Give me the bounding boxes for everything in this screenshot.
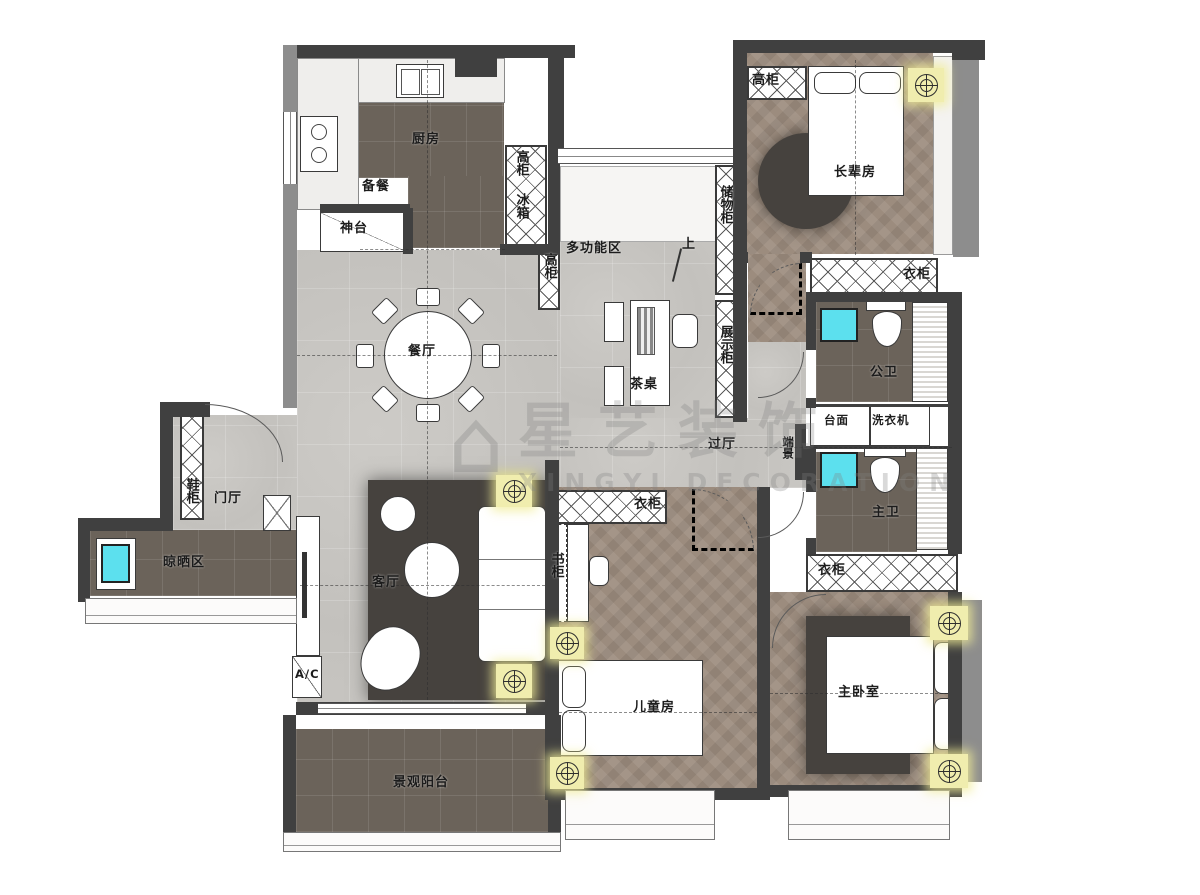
pillow	[814, 72, 856, 94]
public-bath-sink	[820, 308, 858, 342]
ceiling-light-icon	[930, 754, 968, 788]
label-display-cabinet: 展示柜	[718, 325, 732, 364]
ceiling-light-icon	[550, 757, 584, 789]
dining-chair	[356, 344, 374, 368]
label-master-bath: 主卫	[872, 506, 900, 520]
master-bath-shower	[916, 448, 948, 550]
label-bookcase: 书柜	[549, 552, 563, 578]
sink-basin	[421, 69, 440, 95]
side-round-table	[380, 496, 416, 532]
label-washing-machine: 洗衣机	[872, 414, 910, 426]
label-tall-cabinet: 高柜	[752, 74, 780, 88]
label-fridge: 冰箱	[514, 193, 528, 219]
desk-monitor	[637, 307, 655, 355]
wall-segment	[806, 446, 816, 492]
multi-function-platform	[560, 166, 716, 242]
wall-segment	[320, 204, 410, 213]
wall-segment	[548, 58, 564, 150]
desk-chair	[672, 314, 698, 348]
wall-segment	[548, 150, 560, 250]
label-kitchen: 厨房	[412, 133, 440, 147]
window	[558, 148, 738, 164]
ceiling-light-icon	[496, 664, 532, 698]
label-multi-function: 多功能区	[566, 242, 622, 256]
label-hallway: 过厅	[708, 438, 736, 452]
pillow	[859, 72, 901, 94]
guide-line	[427, 60, 428, 700]
wall-segment	[160, 402, 173, 530]
sofa	[478, 506, 546, 662]
wall-segment	[806, 302, 816, 350]
dining-chair	[416, 288, 440, 306]
entry-door-arc	[205, 404, 283, 462]
wall-segment	[733, 53, 747, 303]
floor-kitchen-b	[408, 176, 504, 248]
window-sill-balcony	[283, 832, 561, 852]
wall-segment	[800, 252, 812, 263]
label-ac: A/C	[295, 668, 320, 680]
wall-segment	[953, 60, 979, 257]
side-table	[604, 302, 624, 342]
label-wardrobe: 衣柜	[903, 268, 931, 282]
tv-console	[296, 516, 320, 656]
label-end-view: 端景	[782, 436, 794, 459]
wall-segment	[948, 292, 962, 554]
floor-hallway	[560, 418, 806, 488]
floor-plan-canvas: 厨房 高柜 备餐 冰箱 神台 高柜 多功能区 储物柜 上 高柜 长辈房 衣柜 公…	[0, 0, 1200, 895]
label-wardrobe: 衣柜	[634, 498, 662, 512]
sink-basin	[401, 69, 420, 95]
kitchen-stove	[300, 116, 338, 172]
master-bath-sink	[820, 452, 858, 488]
bay-window-children	[565, 790, 715, 840]
label-living: 客厅	[372, 576, 400, 590]
label-dining: 餐厅	[408, 345, 436, 359]
end-view-wall	[795, 424, 806, 480]
label-storage-cabinet: 储物柜	[718, 185, 732, 224]
label-public-bath: 公卫	[870, 366, 898, 380]
dining-chair	[416, 404, 440, 422]
master-bath-door-arc	[758, 492, 804, 538]
children-desk-chair	[589, 556, 609, 586]
guide-line	[560, 447, 952, 448]
ceiling-light-icon	[550, 627, 584, 659]
wall-segment	[733, 303, 747, 422]
kitchen-sink	[396, 64, 444, 98]
wall-segment	[283, 715, 296, 835]
label-shoe-cabinet: 鞋柜	[184, 478, 198, 504]
label-tall-cabinet: 高柜	[542, 253, 556, 279]
drying-washer	[96, 538, 136, 590]
guide-line	[360, 249, 505, 250]
side-table	[604, 366, 624, 406]
label-tea-table: 茶桌	[630, 378, 658, 392]
wall-segment	[733, 252, 748, 263]
foyer-cabinet	[263, 495, 291, 531]
guide-line	[855, 60, 856, 255]
label-prep: 备餐	[362, 180, 390, 194]
children-desk	[567, 524, 589, 622]
label-balcony: 景观阳台	[393, 776, 449, 790]
wall-segment	[806, 538, 816, 554]
wall-segment	[733, 40, 985, 53]
ceiling-light-icon	[930, 606, 968, 640]
dining-chair	[482, 344, 500, 368]
stove-burner	[311, 147, 327, 163]
wall-segment	[952, 40, 985, 60]
wall-segment	[283, 208, 297, 408]
wall-segment	[806, 404, 952, 407]
window-sill-drying	[85, 598, 297, 624]
label-tall-cabinet: 高柜	[514, 150, 528, 176]
window	[318, 703, 526, 714]
label-drying-area: 晾晒区	[163, 556, 205, 570]
wall-segment	[283, 45, 575, 58]
window	[283, 112, 297, 184]
wall-segment	[78, 518, 173, 531]
label-foyer: 门厅	[214, 492, 242, 506]
wall-segment	[78, 518, 90, 602]
label-up: 上	[682, 238, 696, 252]
label-counter: 台面	[824, 414, 849, 426]
label-master-bedroom: 主卧室	[838, 686, 880, 700]
pillow	[562, 666, 586, 708]
pillow	[562, 710, 586, 752]
bay-window-master	[788, 790, 950, 840]
guide-line	[300, 585, 545, 586]
public-bath-shower	[912, 302, 948, 402]
label-altar: 神台	[340, 222, 368, 236]
label-wardrobe: 衣柜	[818, 564, 846, 578]
wall-segment	[403, 208, 413, 254]
stove-burner	[311, 124, 327, 140]
coffee-table	[404, 542, 460, 598]
label-elder-room: 长辈房	[834, 166, 876, 180]
ceiling-light-icon	[908, 68, 944, 102]
wall-segment	[806, 292, 952, 302]
label-children-room: 儿童房	[633, 701, 675, 715]
drying-washer-tub	[101, 544, 130, 583]
ceiling-light-icon	[496, 475, 532, 507]
